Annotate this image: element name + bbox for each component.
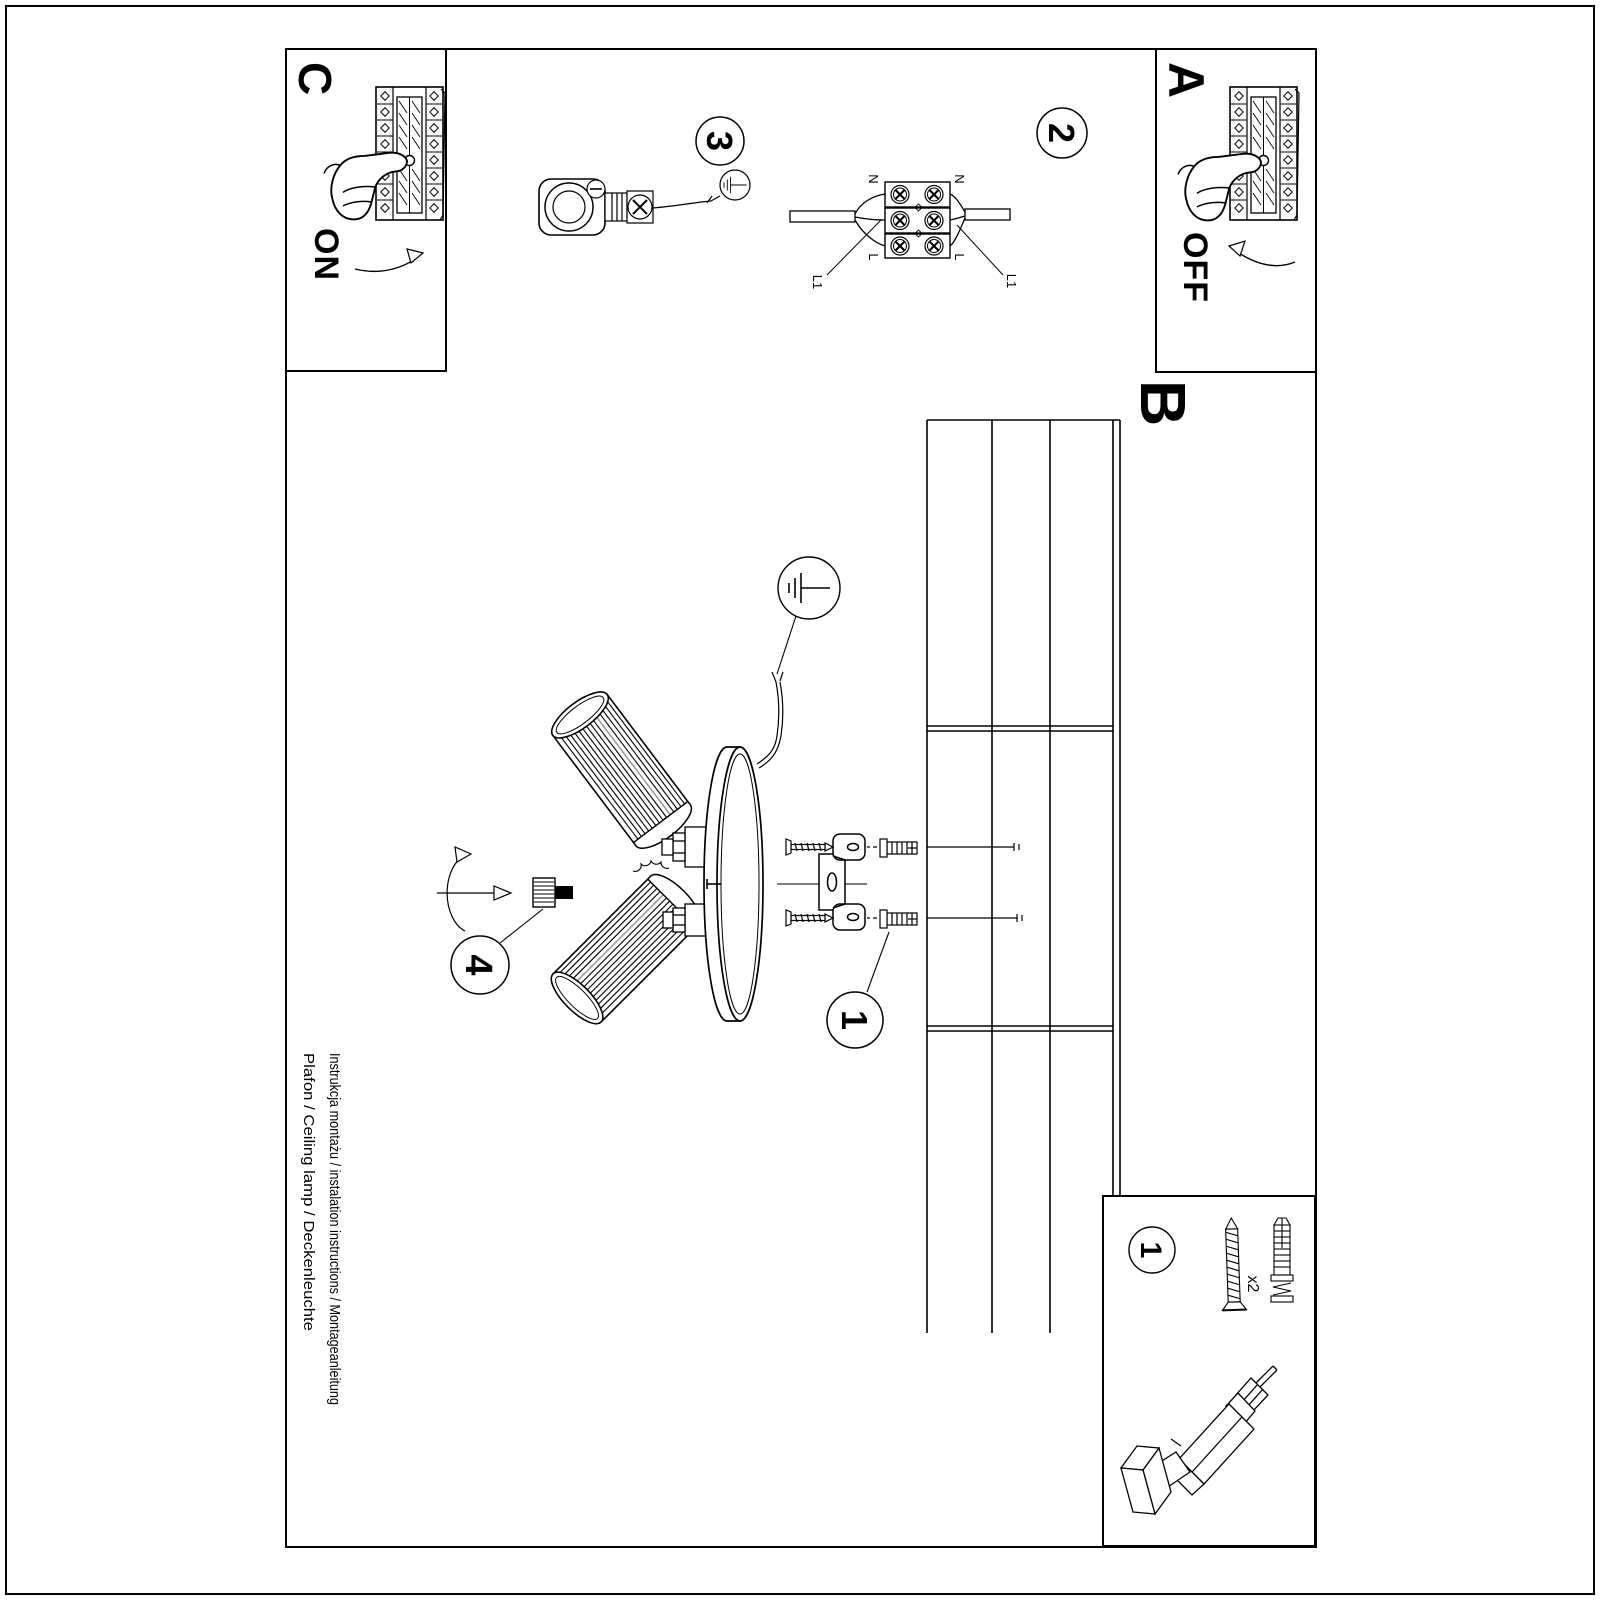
wire-label-l-top: L xyxy=(952,253,967,260)
mounting-screw-left xyxy=(786,839,833,855)
earth-symbol-circle-small xyxy=(720,170,750,200)
section-c-label: C xyxy=(289,62,341,95)
wire-label-n-bottom: N xyxy=(866,174,881,183)
lamp-shade-left xyxy=(545,684,698,856)
wire-label-l-bottom: L xyxy=(866,253,881,260)
wall-plug-right xyxy=(867,910,917,928)
scanned-instruction-page: { "document": { "sections": { "a": "A", … xyxy=(0,0,1600,1600)
instruction-sheet-rotated: 1 4 A OFF C ON B 2 xyxy=(285,48,1317,1548)
parts-step-1-callout: 1 xyxy=(1129,1227,1175,1273)
screw-qty-label: x2 xyxy=(1244,1276,1261,1293)
terminal-block: N N L L L1 L1 xyxy=(790,174,1019,289)
canopy xyxy=(704,747,763,1021)
wall-plug-left xyxy=(867,839,917,857)
wire-label-l1-bottom: L1 xyxy=(810,275,825,289)
step-3-callout: 3 xyxy=(696,117,744,165)
lamp-holder xyxy=(539,179,720,235)
section-c-box: C ON xyxy=(286,49,446,371)
earth-symbol-circle xyxy=(777,557,840,674)
switch-off-label: OFF xyxy=(1176,232,1214,303)
ceiling-planks xyxy=(927,420,1120,1333)
parts-box: 1 x2 xyxy=(1103,1196,1315,1546)
wire-label-n-top: N xyxy=(952,174,967,183)
step-4-number: 4 xyxy=(457,954,499,975)
rotation-arrow xyxy=(437,847,511,931)
supply-cable xyxy=(757,672,783,768)
thumb-screw xyxy=(533,878,573,907)
mounting-screw-right xyxy=(786,910,833,926)
step-2-callout: 2 xyxy=(1037,108,1087,158)
hidden-rim-scallop xyxy=(633,861,669,871)
step-1-number: 1 xyxy=(834,1010,875,1030)
section-a-label: A xyxy=(1158,62,1214,98)
section-b-label: B xyxy=(1127,380,1199,426)
step-2-number: 2 xyxy=(1041,123,1082,143)
footer-product-line: Plafon / Ceiling lamp / Deckenleuchte xyxy=(300,1053,317,1331)
step-4-callout: 4 xyxy=(451,909,543,994)
instruction-artwork: 1 4 A OFF C ON B 2 xyxy=(285,48,1317,1548)
step-1-callout: 1 xyxy=(827,932,889,1048)
parts-step-1-number: 1 xyxy=(1134,1242,1167,1259)
footer-title-line: Instrukcja montażu / instalation instruc… xyxy=(326,1053,343,1405)
switch-on-label: ON xyxy=(307,228,345,281)
drill-hole-marks xyxy=(927,843,1022,922)
step-3-number: 3 xyxy=(699,131,740,151)
section-a-box: A OFF xyxy=(1156,49,1316,372)
wire-label-l1-top: L1 xyxy=(1004,274,1019,288)
